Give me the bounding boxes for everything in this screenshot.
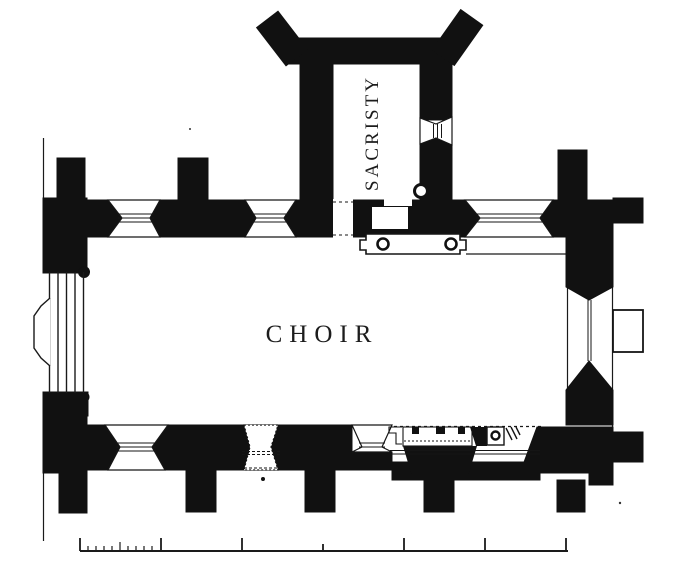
sacristy-west-wall: [300, 58, 333, 203]
sacristy-ne-diagonal-buttress: [443, 17, 472, 58]
ne-window-pier: [566, 237, 613, 300]
stair-vice-shaft: [415, 185, 428, 198]
south-window-2: [352, 425, 392, 452]
sedilia-west-bracket: [389, 427, 402, 444]
scale-bar: [80, 538, 568, 551]
floor-plan-page: CHOIR SACRISTY: [0, 0, 682, 572]
se-buttress-south: [557, 480, 585, 512]
se-buttress-east: [613, 432, 643, 462]
tomb-notch-upper: [384, 199, 412, 206]
tomb-shaft-west: [378, 239, 389, 250]
nw-buttress: [57, 158, 85, 202]
church-floor-plan: CHOIR SACRISTY: [0, 0, 682, 572]
south-buttress-2: [305, 470, 335, 512]
sacristy-nw-diagonal-buttress: [267, 19, 297, 58]
sw-corner-block: [43, 394, 87, 473]
north-pier-buttress: [178, 158, 208, 202]
sw-buttress-south: [59, 473, 87, 513]
scale-bar-subdivision-ticks: [88, 542, 152, 551]
piscina-drain: [492, 432, 500, 440]
sedilia-shaft-3: [458, 427, 465, 434]
west-bay-projection: [34, 298, 50, 366]
sacristy-doorway-gap: [333, 199, 353, 238]
ne-buttress-north: [558, 150, 587, 200]
east-exterior-base: [613, 310, 643, 352]
scale-bar-major-ticks: [80, 538, 566, 551]
se-window-pier: [566, 361, 613, 425]
sacristy-east-wall-upper: [420, 58, 452, 120]
south-buttress-1: [186, 470, 216, 512]
choir-label: CHOIR: [266, 321, 379, 348]
tomb-shaft-east: [446, 239, 457, 250]
piscina-hatching: [506, 427, 520, 440]
south-buttress-3: [424, 478, 454, 512]
sedilia-shaft-1: [412, 427, 419, 434]
sacristy-label: SACRISTY: [362, 75, 383, 191]
sedilia-shaft-2: [436, 427, 445, 434]
tomb-recess-panel: [372, 207, 408, 229]
priest-door-dot: [261, 477, 265, 481]
south-wall-strip: [352, 452, 392, 470]
ne-buttress-east: [613, 198, 643, 223]
west-end-steps: [34, 272, 84, 393]
